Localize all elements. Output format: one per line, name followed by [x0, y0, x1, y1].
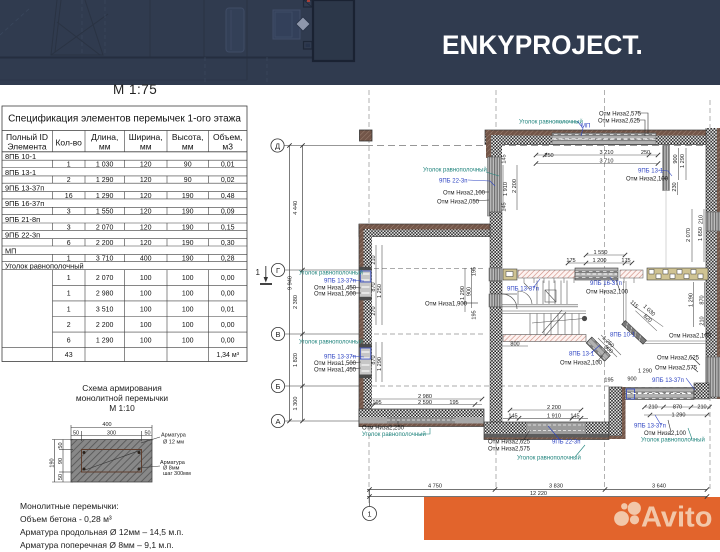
- svg-text:Отм Низа2,625: Отм Низа2,625: [657, 356, 700, 362]
- svg-text:1 290: 1 290: [96, 338, 114, 345]
- svg-text:0,15: 0,15: [221, 224, 235, 231]
- svg-text:400: 400: [102, 422, 111, 428]
- svg-text:210: 210: [700, 316, 706, 325]
- svg-text:100: 100: [182, 291, 194, 298]
- svg-text:100: 100: [182, 306, 194, 313]
- svg-text:175: 175: [566, 258, 575, 264]
- svg-text:50: 50: [58, 442, 64, 448]
- svg-text:250: 250: [544, 153, 553, 159]
- svg-text:2 070: 2 070: [96, 275, 114, 282]
- svg-text:3 640: 3 640: [652, 484, 666, 490]
- svg-text:2 070: 2 070: [686, 228, 692, 242]
- svg-text:0,00: 0,00: [221, 322, 235, 329]
- svg-text:1 910: 1 910: [503, 182, 509, 196]
- svg-text:120: 120: [140, 224, 152, 231]
- svg-text:9ПБ 13-37п: 9ПБ 13-37п: [324, 279, 356, 285]
- svg-text:9ПБ 22-3п: 9ПБ 22-3п: [552, 440, 581, 446]
- svg-text:4 750: 4 750: [428, 484, 442, 490]
- svg-text:В: В: [275, 330, 280, 339]
- svg-text:Уголок равнополочный: Уголок равнополочный: [641, 437, 705, 444]
- svg-text:м3: м3: [222, 142, 233, 152]
- svg-text:шаг 300мм: шаг 300мм: [163, 471, 191, 477]
- svg-text:1 910: 1 910: [547, 413, 561, 419]
- svg-text:12 220: 12 220: [530, 491, 547, 497]
- svg-text:Ширина,: Ширина,: [129, 132, 163, 142]
- svg-text:0,09: 0,09: [221, 209, 235, 216]
- svg-text:100: 100: [182, 338, 194, 345]
- svg-text:9ПБ 13-37п: 9ПБ 13-37п: [324, 355, 356, 361]
- svg-text:Б: Б: [276, 382, 281, 391]
- svg-text:3: 3: [67, 224, 71, 231]
- svg-text:Уголок равнополочный: Уголок равнополочный: [299, 339, 363, 346]
- svg-text:Отм Низа2,575: Отм Низа2,575: [488, 447, 531, 453]
- svg-text:1: 1: [67, 275, 71, 282]
- svg-text:1 200: 1 200: [593, 258, 607, 264]
- svg-text:120: 120: [140, 193, 152, 200]
- svg-text:145: 145: [508, 414, 517, 420]
- svg-text:3 830: 3 830: [549, 484, 563, 490]
- svg-text:2 200: 2 200: [96, 240, 114, 247]
- svg-text:Г: Г: [276, 266, 280, 275]
- svg-text:2: 2: [67, 177, 71, 184]
- svg-text:Полный ID: Полный ID: [6, 132, 48, 142]
- svg-text:2 980: 2 980: [96, 291, 114, 298]
- svg-text:9 940: 9 940: [287, 276, 293, 290]
- svg-text:1 290: 1 290: [96, 177, 114, 184]
- svg-text:100: 100: [140, 322, 152, 329]
- svg-text:Кол-во: Кол-во: [55, 138, 82, 148]
- svg-text:МП: МП: [581, 124, 590, 130]
- svg-text:Отм Низа2,100: Отм Низа2,100: [626, 177, 669, 183]
- svg-text:Отм Низа2,250: Отм Низа2,250: [362, 426, 405, 432]
- svg-text:3 710: 3 710: [96, 256, 114, 263]
- svg-text:195: 195: [449, 400, 458, 406]
- svg-text:1 250: 1 250: [377, 284, 383, 298]
- svg-text:1 290: 1 290: [96, 193, 114, 200]
- svg-text:мм: мм: [140, 142, 152, 152]
- svg-text:900: 900: [673, 154, 679, 163]
- svg-text:3 510: 3 510: [96, 306, 114, 313]
- svg-text:4 440: 4 440: [293, 201, 299, 215]
- svg-text:190: 190: [50, 458, 56, 467]
- svg-text:175: 175: [621, 258, 630, 264]
- svg-text:300: 300: [107, 430, 116, 436]
- svg-text:145: 145: [570, 414, 579, 420]
- svg-text:9ПБ 21-8п: 9ПБ 21-8п: [5, 215, 40, 224]
- svg-text:0,01: 0,01: [221, 162, 235, 169]
- svg-text:А: А: [275, 417, 280, 426]
- svg-text:Д: Д: [275, 141, 280, 150]
- svg-text:Ø 12 мм: Ø 12 мм: [163, 440, 184, 446]
- svg-text:Отм Низа2,100: Отм Низа2,100: [560, 361, 603, 367]
- svg-text:16: 16: [65, 193, 73, 200]
- svg-text:9ПБ 13-37п: 9ПБ 13-37п: [634, 424, 666, 430]
- svg-text:мм: мм: [182, 142, 194, 152]
- svg-text:8ПБ 10-1: 8ПБ 10-1: [610, 333, 636, 339]
- svg-text:120: 120: [140, 209, 152, 216]
- svg-text:МП: МП: [5, 246, 16, 255]
- svg-text:120: 120: [140, 240, 152, 247]
- svg-text:9ПБ 13-37п: 9ПБ 13-37п: [652, 378, 684, 384]
- svg-text:250: 250: [641, 150, 650, 156]
- svg-text:Отм Низа2,625: Отм Низа2,625: [488, 440, 531, 446]
- svg-text:90: 90: [58, 458, 64, 464]
- svg-text:900: 900: [627, 377, 636, 383]
- svg-text:Отм Низа2,050: Отм Низа2,050: [437, 200, 480, 206]
- svg-text:50: 50: [144, 430, 150, 436]
- svg-text:Отм Низа2,575: Отм Низа2,575: [655, 366, 698, 372]
- svg-text:9ПБ 13-37п: 9ПБ 13-37п: [5, 184, 44, 193]
- svg-text:1 290: 1 290: [689, 293, 695, 307]
- svg-text:195: 195: [472, 310, 478, 319]
- svg-text:мм: мм: [99, 142, 111, 152]
- svg-text:100: 100: [140, 275, 152, 282]
- svg-text:Арматура: Арматура: [161, 433, 187, 439]
- svg-text:1: 1: [67, 306, 71, 313]
- svg-text:90: 90: [184, 162, 192, 169]
- svg-text:120: 120: [140, 162, 152, 169]
- svg-text:195: 195: [472, 267, 478, 276]
- svg-text:100: 100: [140, 306, 152, 313]
- svg-text:1: 1: [67, 291, 71, 298]
- svg-text:1 300: 1 300: [293, 397, 299, 411]
- svg-text:1: 1: [367, 509, 371, 518]
- svg-text:100: 100: [182, 322, 194, 329]
- svg-text:0,48: 0,48: [221, 193, 235, 200]
- svg-text:9ПБ 13-37п: 9ПБ 13-37п: [507, 287, 539, 293]
- svg-text:0,30: 0,30: [221, 240, 235, 247]
- svg-text:800: 800: [510, 342, 519, 348]
- svg-text:0,00: 0,00: [221, 291, 235, 298]
- svg-text:0,01: 0,01: [221, 306, 235, 313]
- svg-text:1 820: 1 820: [293, 353, 299, 367]
- svg-text:190: 190: [182, 224, 194, 231]
- svg-text:Отм Низа2,100: Отм Низа2,100: [586, 290, 629, 296]
- svg-text:Уголок равнополочный: Уголок равнополочный: [519, 119, 583, 126]
- svg-text:0,28: 0,28: [221, 256, 235, 263]
- svg-text:100: 100: [182, 275, 194, 282]
- svg-text:9ПБ 13-1: 9ПБ 13-1: [638, 169, 664, 175]
- svg-text:50: 50: [58, 474, 64, 480]
- svg-text:900: 900: [467, 287, 473, 296]
- svg-text:145: 145: [502, 202, 508, 211]
- svg-text:2 200: 2 200: [96, 322, 114, 329]
- svg-text:2 590: 2 590: [418, 400, 432, 406]
- svg-text:1 650: 1 650: [698, 227, 704, 241]
- svg-text:8ПБ 13-1: 8ПБ 13-1: [569, 352, 595, 358]
- svg-text:210: 210: [697, 405, 706, 411]
- svg-text:100: 100: [140, 291, 152, 298]
- svg-text:Уголок равнополочный: Уголок равнополочный: [517, 455, 581, 462]
- svg-text:0,02: 0,02: [221, 177, 235, 184]
- svg-text:210: 210: [699, 215, 705, 224]
- svg-text:9ПБ 22-3п: 9ПБ 22-3п: [439, 179, 468, 185]
- svg-text:8ПБ 13-1: 8ПБ 13-1: [5, 168, 36, 177]
- svg-text:190: 190: [182, 256, 194, 263]
- svg-text:0,00: 0,00: [221, 338, 235, 345]
- svg-text:190: 190: [182, 193, 194, 200]
- svg-text:100: 100: [140, 338, 152, 345]
- svg-text:1 550: 1 550: [96, 209, 114, 216]
- svg-text:1 290: 1 290: [680, 154, 686, 168]
- svg-text:1,34 м³: 1,34 м³: [216, 352, 239, 359]
- svg-text:50: 50: [73, 430, 79, 436]
- svg-text:870: 870: [673, 405, 682, 411]
- svg-text:120: 120: [140, 177, 152, 184]
- svg-text:Объем,: Объем,: [213, 132, 242, 142]
- svg-text:Отм Низа1,450: Отм Низа1,450: [314, 368, 357, 374]
- svg-text:400: 400: [140, 256, 152, 263]
- svg-text:Уголок равнополочный: Уголок равнополочный: [423, 167, 487, 174]
- svg-text:Отм Низа2,100: Отм Низа2,100: [443, 191, 486, 197]
- svg-text:Длина,: Длина,: [91, 132, 118, 142]
- svg-text:Уголок равнополочный: Уголок равнополочный: [362, 431, 426, 438]
- svg-text:195: 195: [372, 400, 381, 406]
- svg-text:1 550: 1 550: [594, 250, 608, 256]
- svg-text:Отм Низа2,100: Отм Низа2,100: [669, 334, 712, 340]
- svg-text:2 070: 2 070: [96, 224, 114, 231]
- svg-text:Уголок равнополочный: Уголок равнополочный: [299, 270, 363, 277]
- svg-text:6: 6: [67, 240, 71, 247]
- svg-text:Отм Низа2,100: Отм Низа2,100: [644, 431, 687, 437]
- svg-text:190: 190: [182, 209, 194, 216]
- svg-text:90: 90: [184, 177, 192, 184]
- svg-text:9ПБ 16-37п: 9ПБ 16-37п: [5, 199, 44, 208]
- svg-text:2: 2: [67, 322, 71, 329]
- svg-text:0,00: 0,00: [221, 275, 235, 282]
- svg-text:230: 230: [672, 182, 678, 191]
- svg-text:6: 6: [67, 338, 71, 345]
- svg-text:3 210: 3 210: [600, 150, 614, 156]
- svg-text:1 290: 1 290: [460, 286, 466, 300]
- svg-text:3: 3: [67, 209, 71, 216]
- svg-text:Отм Низа2,625: Отм Низа2,625: [598, 119, 641, 125]
- svg-text:870: 870: [700, 295, 706, 304]
- svg-text:Отм Низа2,575: Отм Низа2,575: [599, 112, 642, 118]
- svg-text:195: 195: [604, 378, 613, 384]
- svg-text:1: 1: [67, 162, 71, 169]
- svg-text:Высота,: Высота,: [172, 132, 204, 142]
- svg-text:9ПБ 22-3п: 9ПБ 22-3п: [5, 231, 40, 240]
- svg-text:Отм Низа1,500: Отм Низа1,500: [314, 361, 357, 367]
- svg-text:1: 1: [67, 256, 71, 263]
- svg-text:2 200: 2 200: [547, 405, 561, 411]
- svg-text:9ПБ 16-37п: 9ПБ 16-37п: [590, 281, 622, 287]
- svg-text:Элемента: Элемента: [7, 142, 47, 152]
- svg-text:Отм Низа1,900: Отм Низа1,900: [425, 302, 468, 308]
- svg-text:8ПБ 10-1: 8ПБ 10-1: [5, 152, 36, 161]
- svg-text:43: 43: [65, 352, 73, 359]
- svg-text:270: 270: [371, 306, 377, 315]
- svg-text:Спецификация элементов перемыч: Спецификация элементов перемычек 1-ого э…: [8, 113, 241, 125]
- svg-text:145: 145: [502, 154, 508, 163]
- svg-text:3 710: 3 710: [600, 158, 614, 164]
- svg-text:1 290: 1 290: [672, 413, 686, 419]
- svg-text:1 030: 1 030: [96, 162, 114, 169]
- svg-text:1: 1: [256, 268, 261, 277]
- svg-text:Уголок равнополочный: Уголок равнополочный: [5, 262, 84, 271]
- svg-text:1 290: 1 290: [377, 357, 383, 371]
- svg-text:2 380: 2 380: [293, 295, 299, 309]
- svg-text:190: 190: [182, 240, 194, 247]
- svg-text:210: 210: [648, 405, 657, 411]
- svg-text:1 290: 1 290: [638, 369, 652, 375]
- svg-text:210: 210: [371, 255, 377, 264]
- svg-text:Отм Низа1,500: Отм Низа1,500: [314, 292, 357, 298]
- svg-text:2 200: 2 200: [512, 179, 518, 193]
